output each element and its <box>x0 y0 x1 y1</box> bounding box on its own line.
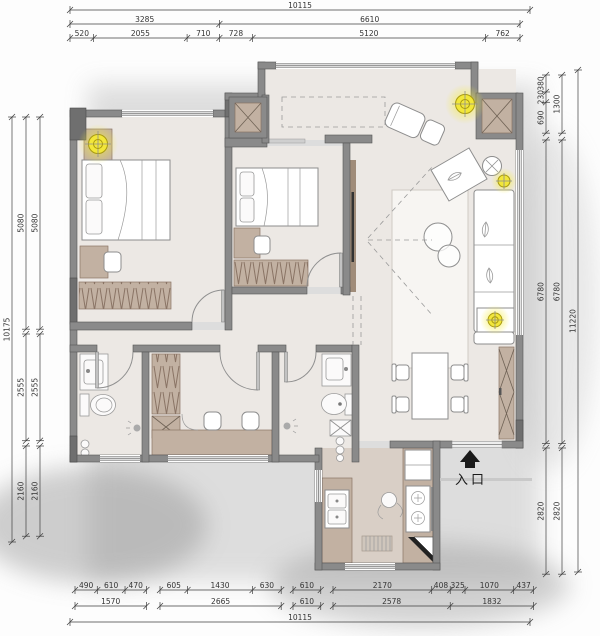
dim-label: 2820 <box>537 501 546 520</box>
light-sofa-side <box>491 168 517 194</box>
toilet-bowl <box>322 394 347 415</box>
dim-label: 1070 <box>480 581 499 590</box>
chair <box>254 236 270 254</box>
dim-label: 5120 <box>359 29 378 38</box>
rug <box>392 190 468 368</box>
dim-label: 325 <box>450 581 465 590</box>
light-bedroom1 <box>78 124 118 164</box>
faucet <box>86 369 90 373</box>
pillow <box>240 172 254 196</box>
window-kitchen-south <box>345 563 395 570</box>
dim-label: 728 <box>229 29 244 38</box>
dimension-strip: 10115 <box>67 1 533 14</box>
dimension-strip: 52020557107285120762 <box>67 29 523 42</box>
dim-label: 230 <box>537 90 546 105</box>
dim-label: 610 <box>300 581 315 590</box>
dim-label: 3285 <box>135 15 154 24</box>
stove <box>406 486 430 532</box>
stool <box>204 412 221 430</box>
dim-label: 520 <box>75 29 90 38</box>
dim-label: 1300 <box>553 94 562 113</box>
dim-label: 2160 <box>17 481 26 500</box>
washer-dial <box>337 455 344 462</box>
hall-floor-mid <box>225 294 352 352</box>
toilet-tank <box>80 394 89 416</box>
washer-dial <box>336 437 344 445</box>
dim-label: 5080 <box>31 213 40 232</box>
dim-label: 490 <box>79 581 94 590</box>
counter <box>152 430 272 455</box>
window-living <box>276 62 455 69</box>
floor-plan-page: 入口 1011532856610520205571072851207624906… <box>0 0 600 636</box>
shelf <box>265 139 305 143</box>
dimension-strip: 490610470 <box>72 581 149 594</box>
window-study <box>168 455 268 462</box>
stool <box>242 412 259 430</box>
dimension-strip: 5080 <box>17 114 31 332</box>
dim-label: 6780 <box>537 282 546 301</box>
window-bedroom1 <box>122 110 213 117</box>
dim-label: 2820 <box>553 501 562 520</box>
coffee-table <box>438 245 460 267</box>
dim-label: 5080 <box>17 213 26 232</box>
dim-label: 470 <box>129 581 144 590</box>
dim-label: 11220 <box>569 309 578 333</box>
floor-plan-canvas: 入口 1011532856610520205571072851207624906… <box>0 0 600 636</box>
dimension-strip: 6051430630 <box>157 581 284 594</box>
dimension-strip: 10175 <box>3 114 17 545</box>
dim-label: 2555 <box>31 378 40 397</box>
dim-label: 10115 <box>288 613 312 622</box>
pillow <box>240 198 254 222</box>
light-end-table <box>480 305 510 335</box>
dim-label: 2555 <box>17 378 26 397</box>
window-kitchen-west <box>315 470 322 502</box>
dim-label: 1832 <box>482 597 501 606</box>
dim-label: 2160 <box>31 481 40 500</box>
tv-screen <box>352 192 355 262</box>
handle <box>499 388 502 395</box>
window-bath1 <box>100 455 140 462</box>
pillow <box>86 200 102 234</box>
dim-label: 610 <box>104 581 119 590</box>
dim-label: 605 <box>167 581 182 590</box>
chair <box>104 252 121 272</box>
dimension-strip: 1300 <box>553 72 567 136</box>
washer-dial <box>336 446 344 454</box>
pillow <box>86 164 102 198</box>
dimension-strip: 2555 <box>17 331 31 444</box>
dim-label: 1430 <box>210 581 229 590</box>
faucet <box>344 367 348 371</box>
dim-label: 10115 <box>288 1 312 10</box>
dim-label: 10175 <box>3 317 12 341</box>
dim-label: 2170 <box>373 581 392 590</box>
dining-table <box>412 353 448 419</box>
dim-label: 408 <box>434 581 449 590</box>
floor-mat <box>362 536 392 551</box>
entry-label: 入口 <box>455 473 487 488</box>
light-living <box>445 84 485 124</box>
dim-label: 6780 <box>553 282 562 301</box>
floor-drain <box>81 440 89 448</box>
sink <box>326 358 343 380</box>
dimension-strip: 2555 <box>31 331 45 444</box>
dim-label: 1570 <box>101 597 120 606</box>
dimension-strip: 5080 <box>31 114 45 332</box>
dim-label: 610 <box>300 597 315 606</box>
dim-label: 2055 <box>131 29 150 38</box>
dim-label: 710 <box>196 29 211 38</box>
dim-label: 2578 <box>382 597 401 606</box>
dimension-strip: 1570 <box>72 597 149 610</box>
dim-label: 630 <box>260 581 275 590</box>
window-east <box>516 150 523 335</box>
dimension-strip: 32856610 <box>67 15 523 28</box>
dimension-strip: 2665 <box>157 597 284 610</box>
dim-label: 6610 <box>360 15 379 24</box>
dim-label: 690 <box>537 110 546 125</box>
dim-label: 380 <box>537 76 546 91</box>
dim-label: 437 <box>516 581 531 590</box>
dim-label: 2665 <box>211 597 230 606</box>
entry-door-threshold <box>452 442 502 448</box>
dim-label: 762 <box>496 29 511 38</box>
